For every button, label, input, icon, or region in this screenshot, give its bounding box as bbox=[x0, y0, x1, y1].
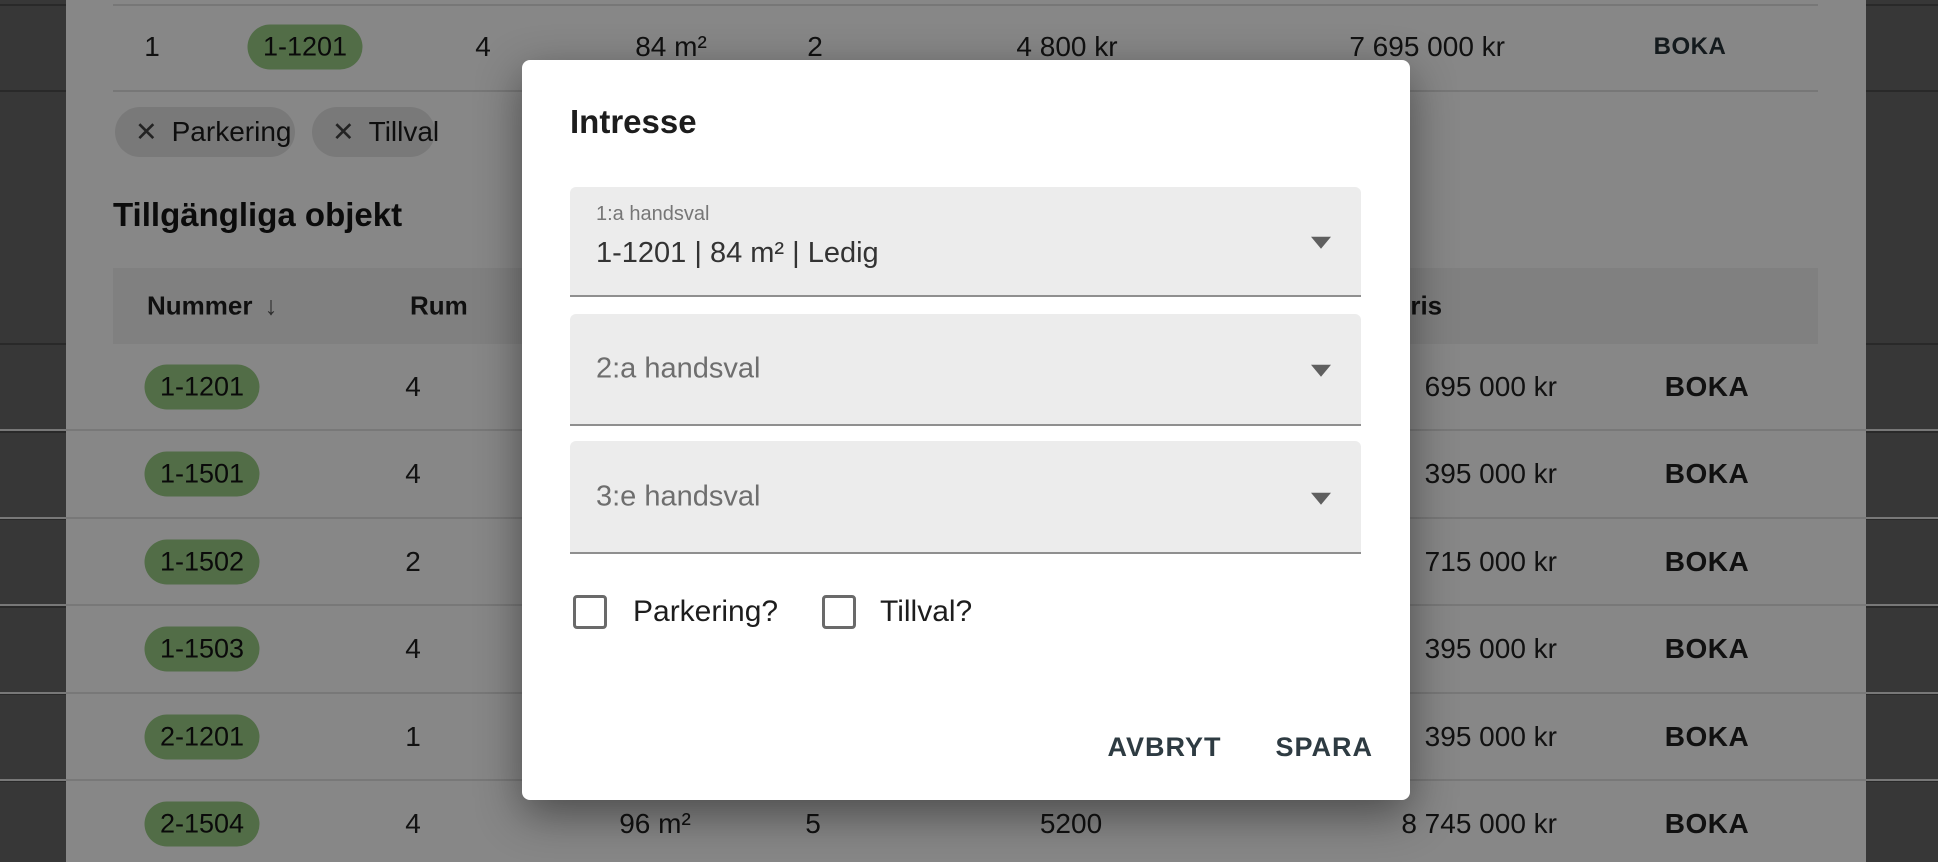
select-second-choice[interactable]: 2:a handsval bbox=[570, 314, 1361, 426]
chevron-down-icon bbox=[1311, 365, 1331, 377]
save-button[interactable]: SPARA bbox=[1273, 724, 1375, 771]
parkering-checkbox[interactable] bbox=[573, 595, 607, 629]
select-label: 3:e handsval bbox=[596, 480, 760, 513]
select-label: 1:a handsval bbox=[596, 203, 709, 226]
tillval-checkbox-label: Tillval? bbox=[880, 595, 972, 629]
parkering-checkbox-label: Parkering? bbox=[633, 595, 778, 629]
app-screen: 1 1-1201 4 84 m² 2 4 800 kr 7 695 000 kr… bbox=[0, 0, 1938, 862]
select-label: 2:a handsval bbox=[596, 353, 760, 386]
select-third-choice[interactable]: 3:e handsval bbox=[570, 441, 1361, 554]
tillval-checkbox[interactable] bbox=[822, 595, 856, 629]
intresse-dialog: Intresse 1:a handsval 1-1201 | 84 m² | L… bbox=[522, 60, 1410, 800]
cancel-button[interactable]: AVBRYT bbox=[1105, 724, 1223, 771]
dialog-title: Intresse bbox=[570, 103, 697, 141]
chevron-down-icon bbox=[1311, 237, 1331, 249]
select-first-choice[interactable]: 1:a handsval 1-1201 | 84 m² | Ledig bbox=[570, 187, 1361, 297]
dialog-actions: AVBRYT SPARA bbox=[1105, 724, 1375, 771]
select-value: 1-1201 | 84 m² | Ledig bbox=[596, 237, 879, 270]
chevron-down-icon bbox=[1311, 492, 1331, 504]
